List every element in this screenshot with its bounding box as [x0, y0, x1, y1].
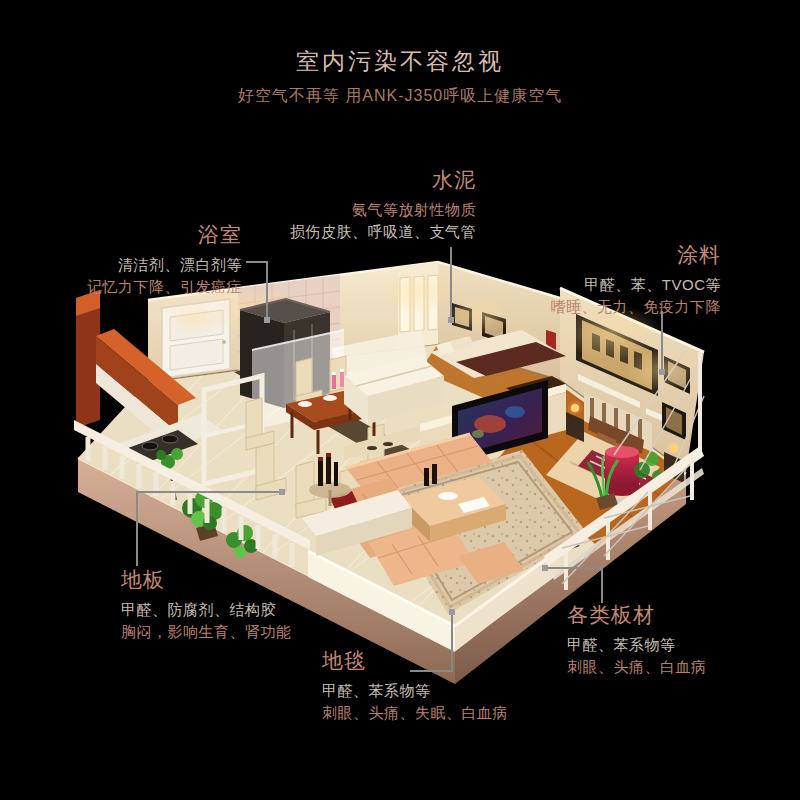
floor-connector-dot: [279, 489, 285, 495]
page-title: 室内污染不容忽视: [0, 46, 800, 77]
callout-boards-line2: 刺眼、头痛、白血病: [567, 656, 707, 678]
callout-floor: 地板 甲醛、防腐剂、结构胶 胸闷，影响生育、肾功能: [121, 569, 292, 643]
callout-carpet-title: 地毯: [322, 650, 508, 672]
cement-connector-dot: [448, 317, 454, 323]
carpet-connector-dot: [449, 609, 455, 615]
callout-boards-line1: 甲醛、苯系物等: [567, 634, 707, 656]
callout-cement-line1: 氨气等放射性物质: [290, 199, 476, 221]
paint-connector-dot: [659, 369, 665, 375]
callout-carpet-line2: 刺眼、头痛、失眠、白血病: [322, 702, 508, 724]
callout-cement: 水泥 氨气等放射性物质 损伤皮肤、呼吸道、支气管: [290, 169, 476, 243]
callout-floor-title: 地板: [121, 569, 292, 591]
callout-paint: 涂料 甲醛、苯、TVOC等 嗜睡、无力、免疫力下降: [551, 244, 722, 318]
callout-carpet-line1: 甲醛、苯系物等: [322, 680, 508, 702]
callout-paint-line2: 嗜睡、无力、免疫力下降: [551, 296, 722, 318]
boards-connector-dot: [542, 565, 548, 571]
callout-cement-title: 水泥: [290, 169, 476, 191]
callout-carpet: 地毯 甲醛、苯系物等 刺眼、头痛、失眠、白血病: [322, 650, 508, 724]
callout-cement-line2: 损伤皮肤、呼吸道、支气管: [290, 221, 476, 243]
callout-paint-line1: 甲醛、苯、TVOC等: [551, 274, 722, 296]
callout-boards: 各类板材 甲醛、苯系物等 刺眼、头痛、白血病: [567, 604, 707, 678]
callout-bathroom-title: 浴室: [87, 224, 242, 246]
poster: 室内污染不容忽视 好空气不再等 用ANK-J350呼吸上健康空气 水泥 氨气等放…: [0, 0, 800, 800]
callout-paint-title: 涂料: [551, 244, 722, 266]
callout-boards-title: 各类板材: [567, 604, 707, 626]
bathroom-connector-dot: [264, 317, 270, 323]
page-subtitle: 好空气不再等 用ANK-J350呼吸上健康空气: [0, 86, 800, 107]
callout-floor-line1: 甲醛、防腐剂、结构胶: [121, 599, 292, 621]
callout-floor-line2: 胸闷，影响生育、肾功能: [121, 621, 292, 643]
callout-bathroom-line2: 记忆力下降、引发癌症: [87, 276, 242, 298]
callout-bathroom: 浴室 清洁剂、漂白剂等 记忆力下降、引发癌症: [87, 224, 242, 298]
callout-bathroom-line1: 清洁剂、漂白剂等: [87, 254, 242, 276]
